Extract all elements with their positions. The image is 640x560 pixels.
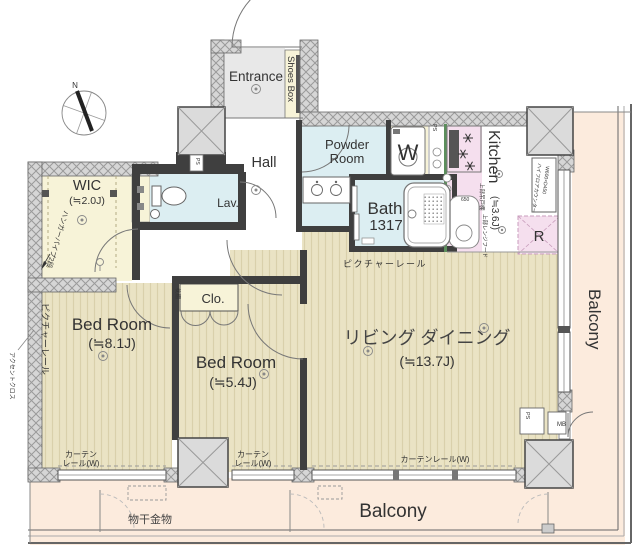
wic-label: WIC: [73, 178, 101, 194]
bath-label: Bath: [368, 199, 403, 218]
pillar-bottom-center: [178, 438, 228, 487]
curtain-rail-label-2b: レール(W): [235, 459, 272, 468]
pipe-space-box-2: [520, 408, 544, 434]
curtain-rail-label-1b: レール(W): [63, 459, 100, 468]
living-dining-size-label: (≒13.7J): [399, 353, 454, 369]
upper-cabinet-label: 上部吊戸棚: [478, 183, 486, 211]
powder-room-label-2: Room: [330, 151, 365, 166]
pillar-bottom-right: [525, 440, 573, 488]
floor-plan-svg: N Entrance Shoes Box Hall Powder Room W …: [0, 0, 640, 560]
meter-box-label: MB: [557, 422, 566, 428]
shoes-box-label: Shoes Box: [285, 56, 296, 102]
drain-box: [542, 524, 554, 533]
pipe-space-label-3: PS: [524, 412, 530, 420]
laundry-label: W: [398, 140, 419, 165]
picture-rail-label-h: ピクチャーレール: [343, 259, 427, 269]
bedroom2-size-label: (≒5.4J): [209, 374, 257, 390]
closet-label: Clo.: [201, 291, 224, 306]
shelf-mark: [137, 203, 144, 210]
balcony-side-label: Balcony: [585, 289, 604, 350]
shelf-mark: [137, 186, 144, 193]
pillar-hall: [178, 107, 225, 155]
kitchen-size-label: (≒3.6J): [489, 196, 500, 230]
compass-north-label: N: [72, 81, 78, 90]
pillar-top-right: [527, 107, 573, 155]
bedroom1-label: Bed Room: [72, 315, 152, 334]
picture-rail-label-v: ピクチャーレール: [40, 303, 50, 375]
vanity: [303, 177, 350, 203]
laundry-hardware-label: 物干金物: [128, 512, 172, 526]
bedroom2-door-gap: [300, 304, 307, 358]
bedroom1-size-label: (≒8.1J): [88, 335, 136, 351]
upper-range-hood-label: 上部レンジフード: [481, 214, 489, 258]
living-dining-label: リビング ダイニング: [343, 328, 510, 348]
kitchen-label: Kitchen: [485, 130, 502, 183]
curtain-rail-label-2a: カーテン: [237, 450, 269, 459]
stove: [447, 126, 481, 172]
entrance-door: [232, 0, 302, 47]
entrance-label: Entrance: [229, 69, 283, 84]
pipe-space-label-2: PS: [194, 158, 200, 165]
compass: N: [62, 81, 106, 135]
wic-size-label: (≒2.0J): [69, 195, 105, 207]
sink-size-label: 650: [461, 197, 470, 203]
bedroom2-label: Bed Room: [196, 353, 276, 372]
window-mullion: [558, 326, 570, 333]
powder-room-label-1: Powder: [325, 137, 370, 152]
bath-size-label: 1317: [369, 217, 402, 234]
hall-label: Hall: [252, 155, 277, 171]
lavatory-label: Lav.: [217, 196, 239, 210]
refrigerator-label: R: [534, 228, 545, 245]
curtain-rail-label-1a: カーテン: [65, 450, 97, 459]
pipe-space-box: [429, 124, 445, 178]
bedroom1-floor: [40, 283, 172, 472]
balcony-bottom-label: Balcony: [359, 501, 427, 522]
curtain-rail-label-3: カーテンレール(W): [401, 455, 470, 464]
room-floors: [35, 48, 560, 472]
pillow-shelf-label: 枕棚: [174, 288, 182, 300]
accent-cloth-label: アクセントクロス: [8, 352, 15, 400]
floor-plan: N Entrance Shoes Box Hall Powder Room W …: [0, 0, 640, 560]
pipe-space-label-1: PS: [431, 124, 437, 132]
lav-sink: [151, 210, 160, 219]
